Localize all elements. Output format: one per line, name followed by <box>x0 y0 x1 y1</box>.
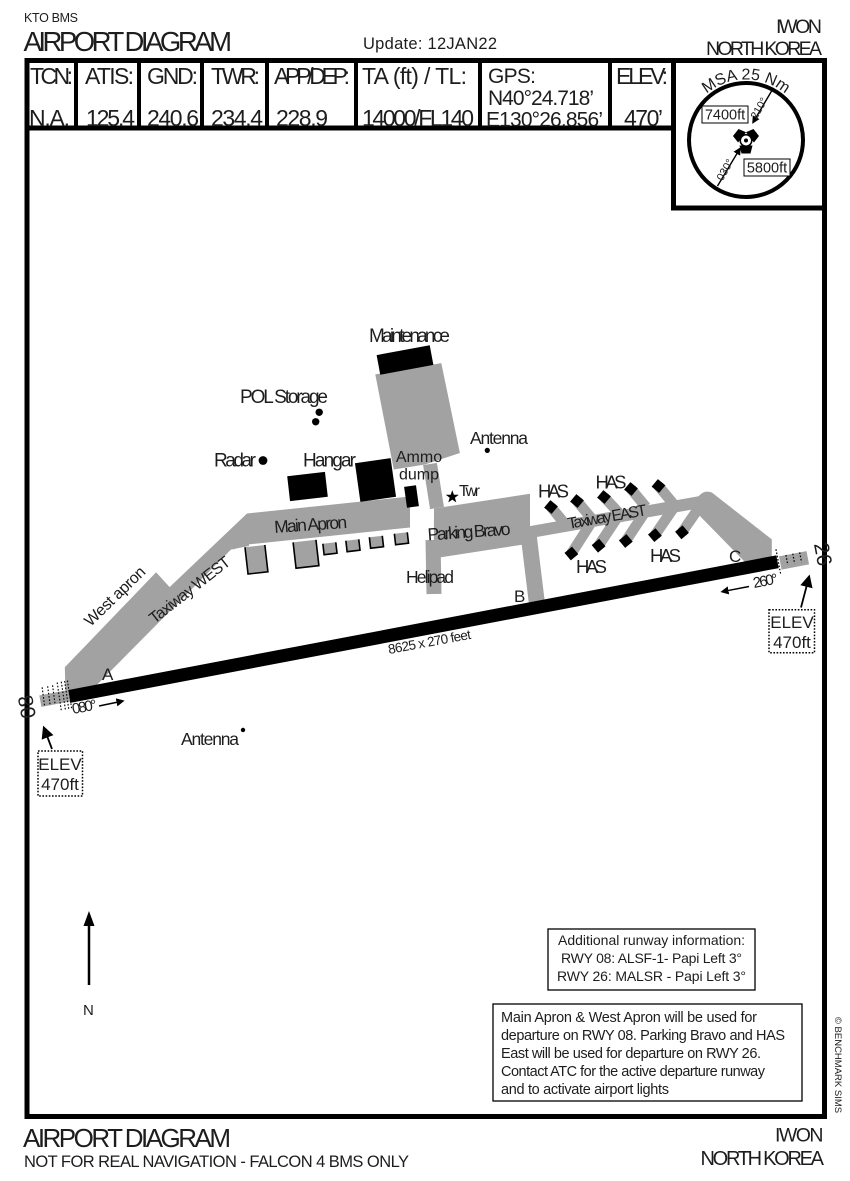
svg-text:GPS:: GPS: <box>488 65 536 88</box>
svg-text:APP/DEP:: APP/DEP: <box>274 63 350 89</box>
svg-text:125.4: 125.4 <box>86 105 135 131</box>
svg-text:NOT FOR REAL NAVIGATION - FALC: NOT FOR REAL NAVIGATION - FALCON 4 BMS O… <box>24 1153 409 1171</box>
svg-text:RWY 26: MALSR - Papi Left 3°: RWY 26: MALSR - Papi Left 3° <box>557 968 746 984</box>
svg-text:HAS: HAS <box>538 481 569 502</box>
svg-text:N40°24.718’: N40°24.718’ <box>488 87 594 110</box>
svg-text:Update: 12JAN22: Update: 12JAN22 <box>363 35 497 53</box>
svg-text:KTO BMS: KTO BMS <box>24 11 78 25</box>
svg-text:IWON: IWON <box>775 1125 824 1147</box>
svg-text:5800ft: 5800ft <box>747 161 787 177</box>
svg-text:TCN:: TCN: <box>30 63 73 89</box>
svg-text:Radar: Radar <box>214 451 257 472</box>
svg-text:TA (ft) / TL:: TA (ft) / TL: <box>362 63 467 89</box>
svg-text:IWON: IWON <box>776 16 822 38</box>
svg-text:ELEV: ELEV <box>770 613 814 632</box>
svg-text:26: 26 <box>809 541 836 568</box>
svg-text:HAS: HAS <box>650 545 681 566</box>
svg-text:N.A.: N.A. <box>29 105 70 131</box>
svg-text:Antenna: Antenna <box>470 428 528 448</box>
svg-text:A: A <box>102 665 114 684</box>
svg-text:B: B <box>514 587 525 606</box>
svg-text:470’: 470’ <box>624 105 663 131</box>
svg-text:ELEV: ELEV <box>38 755 82 774</box>
svg-text:Ammo: Ammo <box>396 449 442 466</box>
svg-text:Contact ATC for the active dep: Contact ATC for the active departure run… <box>501 1064 766 1080</box>
svg-text:dump: dump <box>399 467 439 484</box>
svg-text:ELEV:: ELEV: <box>616 63 668 89</box>
svg-text:and to activate airport lights: and to activate airport lights <box>501 1082 669 1098</box>
svg-text:RWY 08: ALSF-1- Papi Left 3°: RWY 08: ALSF-1- Papi Left 3° <box>561 950 742 966</box>
svg-text:TWR:: TWR: <box>211 63 260 89</box>
svg-text:AIRPORT DIAGRAM: AIRPORT DIAGRAM <box>24 26 233 57</box>
svg-text:228.9: 228.9 <box>276 105 328 131</box>
svg-text:ATIS:: ATIS: <box>85 63 134 89</box>
svg-text:Additional runway information:: Additional runway information: <box>558 932 745 948</box>
svg-text:E130°26.856’: E130°26.856’ <box>486 109 603 132</box>
svg-text:East will be used for departur: East will be used for departure on RWY 2… <box>501 1046 761 1062</box>
svg-text:14000/FL140: 14000/FL140 <box>362 105 474 131</box>
svg-text:470ft: 470ft <box>41 775 79 794</box>
svg-text:GND:: GND: <box>147 63 198 89</box>
svg-text:470ft: 470ft <box>773 633 811 652</box>
svg-text:234.4: 234.4 <box>211 105 263 131</box>
svg-text:Antenna: Antenna <box>181 729 239 749</box>
svg-text:08: 08 <box>14 693 41 720</box>
svg-text:AIRPORT DIAGRAM: AIRPORT DIAGRAM <box>23 1123 231 1153</box>
svg-text:POL Storage: POL Storage <box>240 387 328 408</box>
svg-text:Helipad: Helipad <box>406 567 454 587</box>
svg-text:7400ft: 7400ft <box>705 108 745 124</box>
svg-text:N: N <box>83 1002 94 1019</box>
svg-text:240.6: 240.6 <box>147 105 199 131</box>
svg-text:HAS: HAS <box>596 472 627 493</box>
svg-text:HAS: HAS <box>576 556 607 577</box>
svg-text:© BENCHMARK SIMS: © BENCHMARK SIMS <box>832 1017 843 1113</box>
svg-text:Hangar: Hangar <box>303 451 357 472</box>
svg-text:NORTH KOREA: NORTH KOREA <box>706 38 822 60</box>
svg-text:departure on RWY 08. Parking B: departure on RWY 08. Parking Bravo and H… <box>501 1028 785 1044</box>
svg-text:Twr: Twr <box>459 483 481 500</box>
svg-text:C: C <box>729 547 741 566</box>
svg-text:Main Apron & West Apron will b: Main Apron & West Apron will be used for <box>501 1010 757 1026</box>
svg-text:Maintenance: Maintenance <box>369 326 450 347</box>
svg-text:NORTH KOREA: NORTH KOREA <box>701 1148 825 1170</box>
